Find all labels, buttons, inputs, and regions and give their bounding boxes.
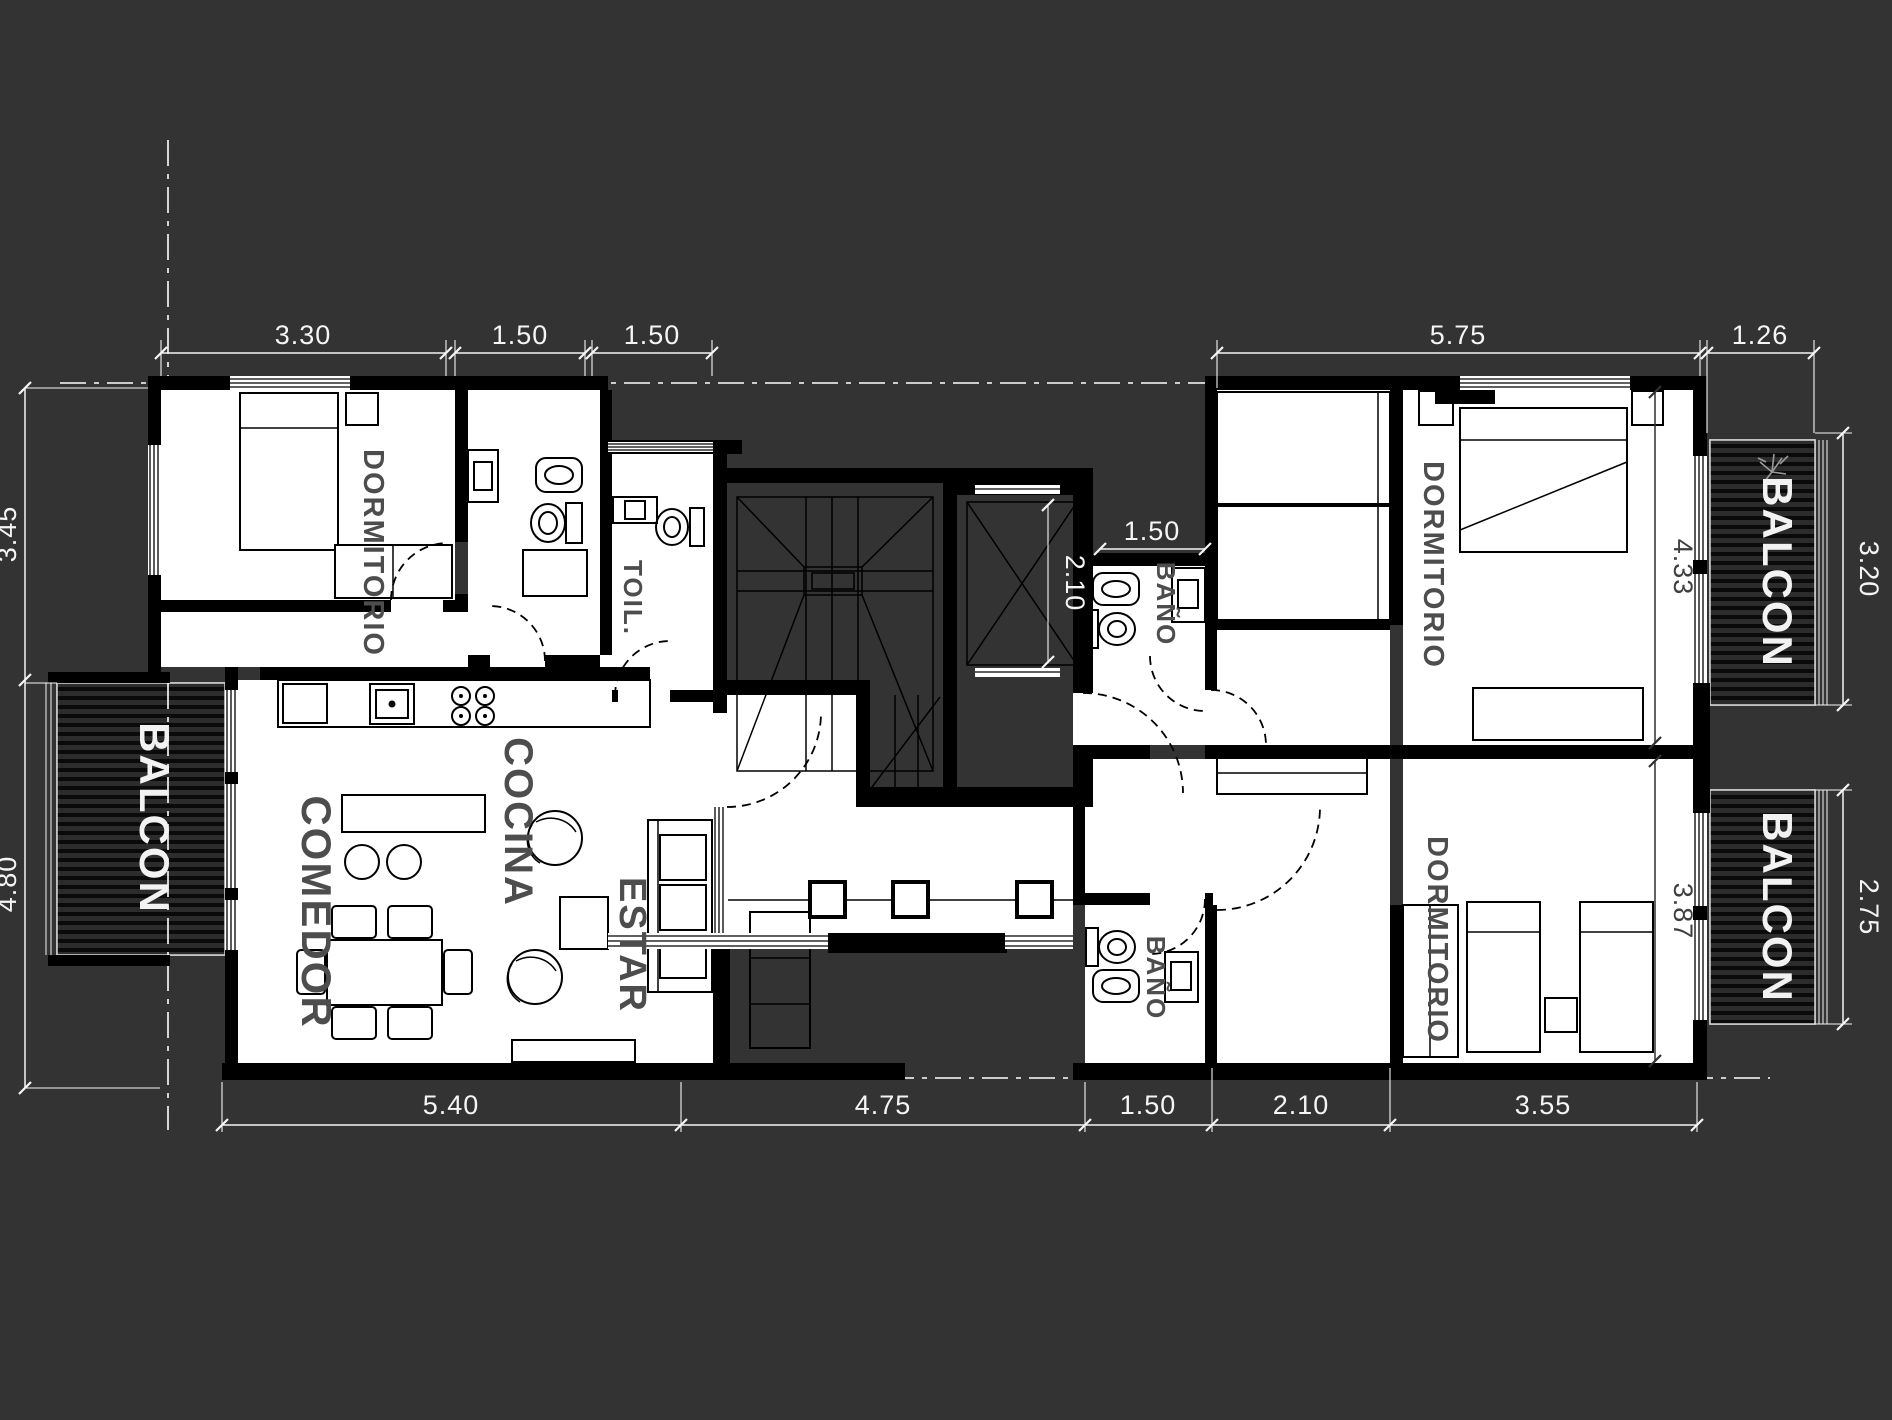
dim-bedroom-top-right: 4.33 bbox=[1668, 539, 1698, 596]
dim-elevator: 2.10 bbox=[1060, 555, 1090, 612]
dim-bottom-1: 4.75 bbox=[855, 1090, 912, 1120]
dim-top-4: 1.26 bbox=[1732, 320, 1789, 350]
dim-top-3: 5.75 bbox=[1430, 320, 1487, 350]
label-kitchen: COCINA bbox=[496, 737, 540, 907]
nightstand bbox=[346, 393, 378, 425]
label-bedroom-bottom-right: DORMITORIO bbox=[1421, 836, 1453, 1044]
dim-bath-upper: 1.50 bbox=[1124, 516, 1181, 546]
label-balcony-bottom-right: BALCON bbox=[1754, 811, 1801, 1003]
label-bedroom-top-left: DORMITORIO bbox=[357, 449, 389, 657]
dim-bedroom-bottom-right: 3.87 bbox=[1668, 883, 1698, 940]
window-estar-gallery bbox=[713, 807, 728, 933]
window-left-wall bbox=[148, 445, 161, 575]
dim-bottom-4: 3.55 bbox=[1515, 1090, 1572, 1120]
balcony-door-left bbox=[225, 690, 238, 950]
label-bedroom-top-right: DORMITORIO bbox=[1417, 461, 1449, 669]
dim-top-2: 1.50 bbox=[624, 320, 681, 350]
label-balcony-top-right: BALCON bbox=[1754, 476, 1801, 668]
dim-left-1: 4.80 bbox=[0, 856, 22, 913]
window-bed-top-left bbox=[230, 376, 350, 390]
dim-right-1: 2.75 bbox=[1854, 879, 1884, 936]
label-toilette: TOIL. bbox=[618, 560, 648, 636]
dim-right-0: 3.20 bbox=[1854, 541, 1884, 598]
nightstand bbox=[1545, 998, 1577, 1032]
dim-left-0: 3.45 bbox=[0, 506, 22, 563]
window-bed-top-right bbox=[1460, 376, 1630, 390]
label-balcony-left: BALCON bbox=[131, 722, 178, 914]
window-toilette bbox=[608, 442, 713, 452]
dim-top-0: 3.30 bbox=[275, 320, 332, 350]
dim-bottom-3: 2.10 bbox=[1273, 1090, 1330, 1120]
label-bath-lower: BAÑO bbox=[1141, 936, 1171, 1021]
gallery-sill-right bbox=[1005, 933, 1073, 949]
dim-bottom-2: 1.50 bbox=[1120, 1090, 1177, 1120]
sofa bbox=[648, 820, 712, 992]
dresser-top-right bbox=[1473, 688, 1643, 740]
floor-plan-canvas: 3.30 1.50 1.50 5.75 1.26 5.40 4.75 1.50 … bbox=[0, 0, 1892, 1420]
kitchen-island bbox=[342, 795, 485, 832]
dim-top-1: 1.50 bbox=[492, 320, 549, 350]
linen-closet bbox=[523, 550, 587, 596]
tv-unit bbox=[512, 1040, 635, 1062]
nightstand bbox=[1632, 391, 1663, 425]
floor-plan-drawing: 3.30 1.50 1.50 5.75 1.26 5.40 4.75 1.50 … bbox=[0, 0, 1892, 1420]
label-living: ESTAR bbox=[611, 877, 653, 1013]
label-bath-upper: BAÑO bbox=[1151, 562, 1181, 647]
label-dining: COMEDOR bbox=[293, 795, 340, 1028]
dim-bottom-0: 5.40 bbox=[423, 1090, 480, 1120]
